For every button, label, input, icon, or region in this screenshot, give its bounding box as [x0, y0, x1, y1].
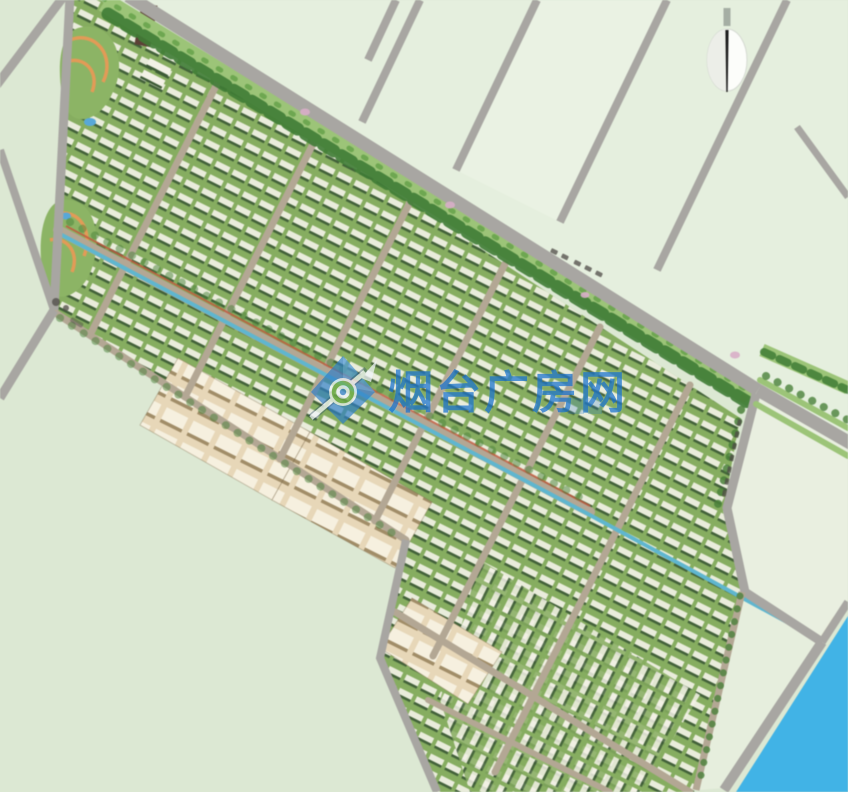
compass-stub [724, 8, 731, 26]
pond [84, 118, 96, 126]
flower-patch [730, 352, 740, 359]
flower-patch [300, 109, 310, 116]
flower-patch [445, 202, 455, 209]
junction-mark [63, 305, 69, 311]
masterplan-map: 烟台广房网 [0, 0, 848, 792]
flower-patch [581, 292, 590, 298]
map-canvas [0, 0, 848, 792]
junction-mark [52, 298, 60, 306]
